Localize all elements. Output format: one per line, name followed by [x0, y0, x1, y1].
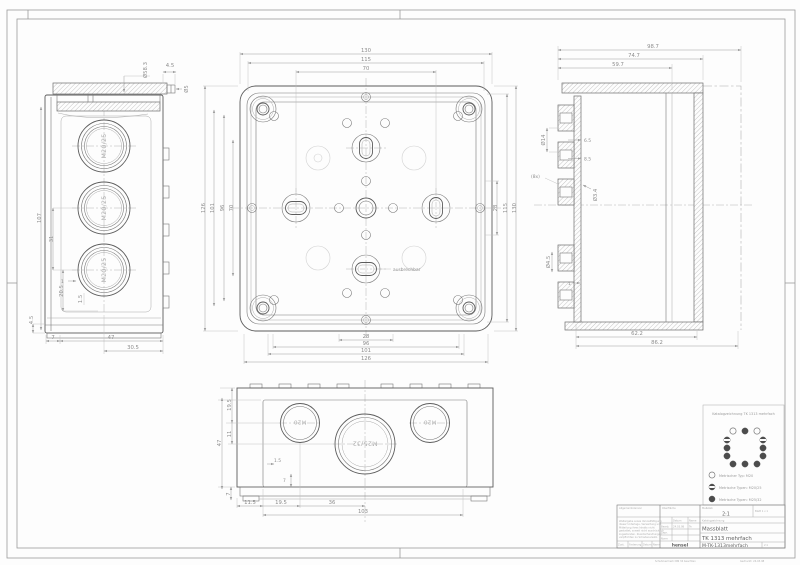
- legend-box: Katalogzeichnung TK 1313 mehrfach Metris…: [703, 405, 784, 505]
- dim-front-left-2: 47: [217, 440, 223, 447]
- section-right-wall: [694, 93, 703, 322]
- knockout-label: M20: [423, 419, 436, 425]
- dim-section-top-1: 74.7: [628, 53, 640, 59]
- tb-sheet-cell: 2:1: [764, 543, 768, 547]
- pattern-dot-filled: [730, 461, 736, 467]
- pattern-dot-filled: [724, 453, 730, 459]
- tb-row3-key: Norm: [661, 537, 668, 541]
- section-bosses: [558, 105, 574, 308]
- dim-plan-top-2: 70: [363, 66, 370, 72]
- tb-drawing-number: M-TK-1313mehrfach: [702, 543, 748, 549]
- tb-sheet-info: Blatt 1 v 1: [755, 509, 768, 513]
- dim-plan-left-2: 96: [220, 204, 226, 211]
- dim-lip-dia: Ø5: [183, 85, 190, 93]
- pattern-dot-filled: [742, 428, 748, 434]
- legend-pattern: [724, 428, 766, 467]
- dim-section-top-2: 59.7: [612, 62, 624, 68]
- tb-approval-table: Datum Name Bearb. 24.03.98 Te Gepr. Norm…: [660, 517, 700, 549]
- pattern-dot-filled: [754, 461, 760, 467]
- sheet-footer-right: Gedruckt: 24.03.98: [740, 559, 765, 563]
- plan-note: ausbrechbar: [393, 267, 421, 273]
- knockout-label: M20: [293, 419, 306, 425]
- pattern-dot-filled: [760, 445, 766, 451]
- dim-one: 1: [568, 281, 571, 287]
- dim-plan-top-1: 115: [361, 57, 371, 63]
- legend-label-2: Metrische Typen: M25/32: [719, 498, 761, 502]
- dim-dia14: Ø14: [540, 134, 547, 146]
- dim-foot: 4.5: [29, 316, 35, 324]
- dim-lip-width: 4.5: [166, 63, 174, 69]
- front-view: M20 M25/32 M20 19.5 11 47 1.5 7 7 11.5 1…: [217, 380, 493, 522]
- dim-plan-right-2: 130: [512, 202, 518, 213]
- knockout-label: M20/25: [101, 258, 108, 283]
- tb-bc4: Name: [653, 543, 661, 547]
- dim-low: 20.5: [59, 285, 65, 297]
- tb-row1-name: Te: [689, 525, 692, 529]
- dim-plan-bottom-3: 126: [361, 356, 372, 362]
- dim-plan-bottom-2: 101: [361, 348, 371, 354]
- pattern-dot-open: [730, 428, 736, 434]
- tb-surface-label: Oberfläche: [662, 506, 676, 510]
- dim-plan-left-3: 70: [229, 204, 235, 211]
- dim-front-bottom-0: 11.5: [244, 500, 256, 506]
- tb-note-line: verpflichten zu Schadenersatz.: [619, 535, 658, 539]
- dim-dia34: Ø3.4: [592, 188, 599, 201]
- tb-scale-value: 2:1: [722, 512, 730, 518]
- dim-section-top-0: 98.7: [647, 44, 659, 50]
- dim-front-7a: 7: [283, 478, 286, 484]
- legend-label-1: Metrische Typen: M20/25: [719, 486, 761, 490]
- knockout-label: M20/25: [101, 134, 108, 159]
- dim-section-bottom-0: 62.2: [631, 331, 643, 337]
- dim-plan-top-0: 130: [361, 48, 372, 54]
- dim-g1: 6.5: [584, 138, 591, 144]
- drawing-sheet: M20/25 M20/25 M20/25 Ø58.3 4.5 Ø5 107 31…: [0, 0, 800, 565]
- dim-plan-right-1: 115: [503, 203, 509, 213]
- dim-plan-left-0: 126: [201, 202, 207, 213]
- side-view: M20/25 M20/25 M20/25 Ø58.3 4.5 Ø5 107 31…: [29, 62, 190, 354]
- legend-border: [703, 405, 784, 505]
- dim-front-15: 1.5: [274, 458, 281, 464]
- dim-front-7b: 7: [226, 492, 232, 495]
- dim-g2: 8.5: [584, 157, 591, 163]
- tb-row1-date: 24.03.98: [673, 525, 685, 529]
- pattern-dot-filled: [760, 453, 766, 459]
- tb-row1-key: Bearb.: [661, 525, 669, 529]
- dim-front-bottom-3: 103: [358, 509, 368, 515]
- pattern-dot-filled: [742, 461, 748, 467]
- tb-copyright-note: Weitergabe sowie Vervielfältigung dieser…: [617, 519, 664, 548]
- dim-front-left-0: 19.5: [227, 399, 233, 411]
- tb-doc-type: Massblatt: [702, 527, 728, 533]
- legend-symbol-filled: [709, 496, 715, 502]
- dim-dia45: Ø4.5: [545, 256, 552, 269]
- pattern-dot-open: [754, 428, 760, 434]
- side-ribs: [163, 148, 169, 308]
- tb-bc2: Änderung: [629, 542, 642, 547]
- section-left-wall: [574, 96, 581, 322]
- dim-plan-bottom-1: 96: [363, 341, 370, 347]
- pattern-dot-filled: [724, 445, 730, 451]
- section-phantom-cover: [703, 86, 741, 330]
- tb-bc3: Datum: [643, 543, 652, 547]
- dim-height: 107: [37, 213, 43, 223]
- legend-title: Katalogzeichnung TK 1313 mehrfach: [712, 412, 775, 416]
- plan-view: ausbrechbar 130 115 70 28 115 130 126 10…: [201, 48, 518, 364]
- legend-label-0: Metrischer Typ: M20: [719, 474, 753, 478]
- tb-head-datum: Datum: [673, 519, 682, 523]
- dim-b2: 47: [108, 335, 115, 341]
- legend-symbol-open: [709, 472, 715, 478]
- tb-scale-label: Maßstab: [702, 506, 713, 510]
- dim-wall: 1: [61, 279, 64, 285]
- tb-head-name: Name: [689, 519, 697, 523]
- dim-front-bottom-1: 19.5: [275, 500, 287, 506]
- cad-drawing: M20/25 M20/25 M20/25 Ø58.3 4.5 Ø5 107 31…: [0, 0, 800, 565]
- dim-plan-left-1: 101: [210, 203, 216, 213]
- dim-front-left-1: 11: [227, 431, 233, 438]
- tb-logo: hensel: [672, 543, 689, 549]
- dim-count: (8x): [531, 174, 540, 180]
- dim-wall2: 1.5: [78, 295, 84, 303]
- dim-mid: 31: [49, 236, 55, 243]
- side-lid-section: [53, 83, 175, 118]
- dim-plan-right-0: 28: [493, 204, 499, 211]
- dim-section-bottom-1: 86.2: [651, 340, 663, 346]
- section-view: 98.7 74.7 59.7 62.2 86.2 Ø14 6.5 8.5 (8x…: [531, 44, 752, 349]
- tb-tolerance-label: Allgemeintoleranz: [619, 506, 642, 510]
- title-block: Allgemeintoleranz Oberfläche Maßstab 2:1…: [617, 505, 785, 563]
- section-lid: [562, 83, 703, 93]
- legend-entries: Metrischer Typ: M20 Metrische Typen: M20…: [709, 472, 761, 502]
- dim-b3: 30.5: [127, 345, 139, 351]
- dim-front-bottom-2: 36: [329, 500, 336, 506]
- knockout-label: M20/25: [101, 196, 108, 221]
- dim-dia: Ø58.3: [142, 62, 149, 78]
- sheet-footer-left: Schutzvermerk DIN 34 beachten: [655, 559, 696, 563]
- dim-b1: 7: [51, 335, 54, 341]
- tb-title: TK 1313 mehrfach: [701, 536, 752, 542]
- section-bottom: [565, 322, 703, 330]
- dim-plan-bottom-0: 28: [363, 334, 370, 340]
- knockout-label: M25/32: [353, 440, 378, 447]
- tb-kind: Katalogzeichnung: [702, 519, 725, 523]
- tb-bc1: Zust.: [618, 543, 625, 547]
